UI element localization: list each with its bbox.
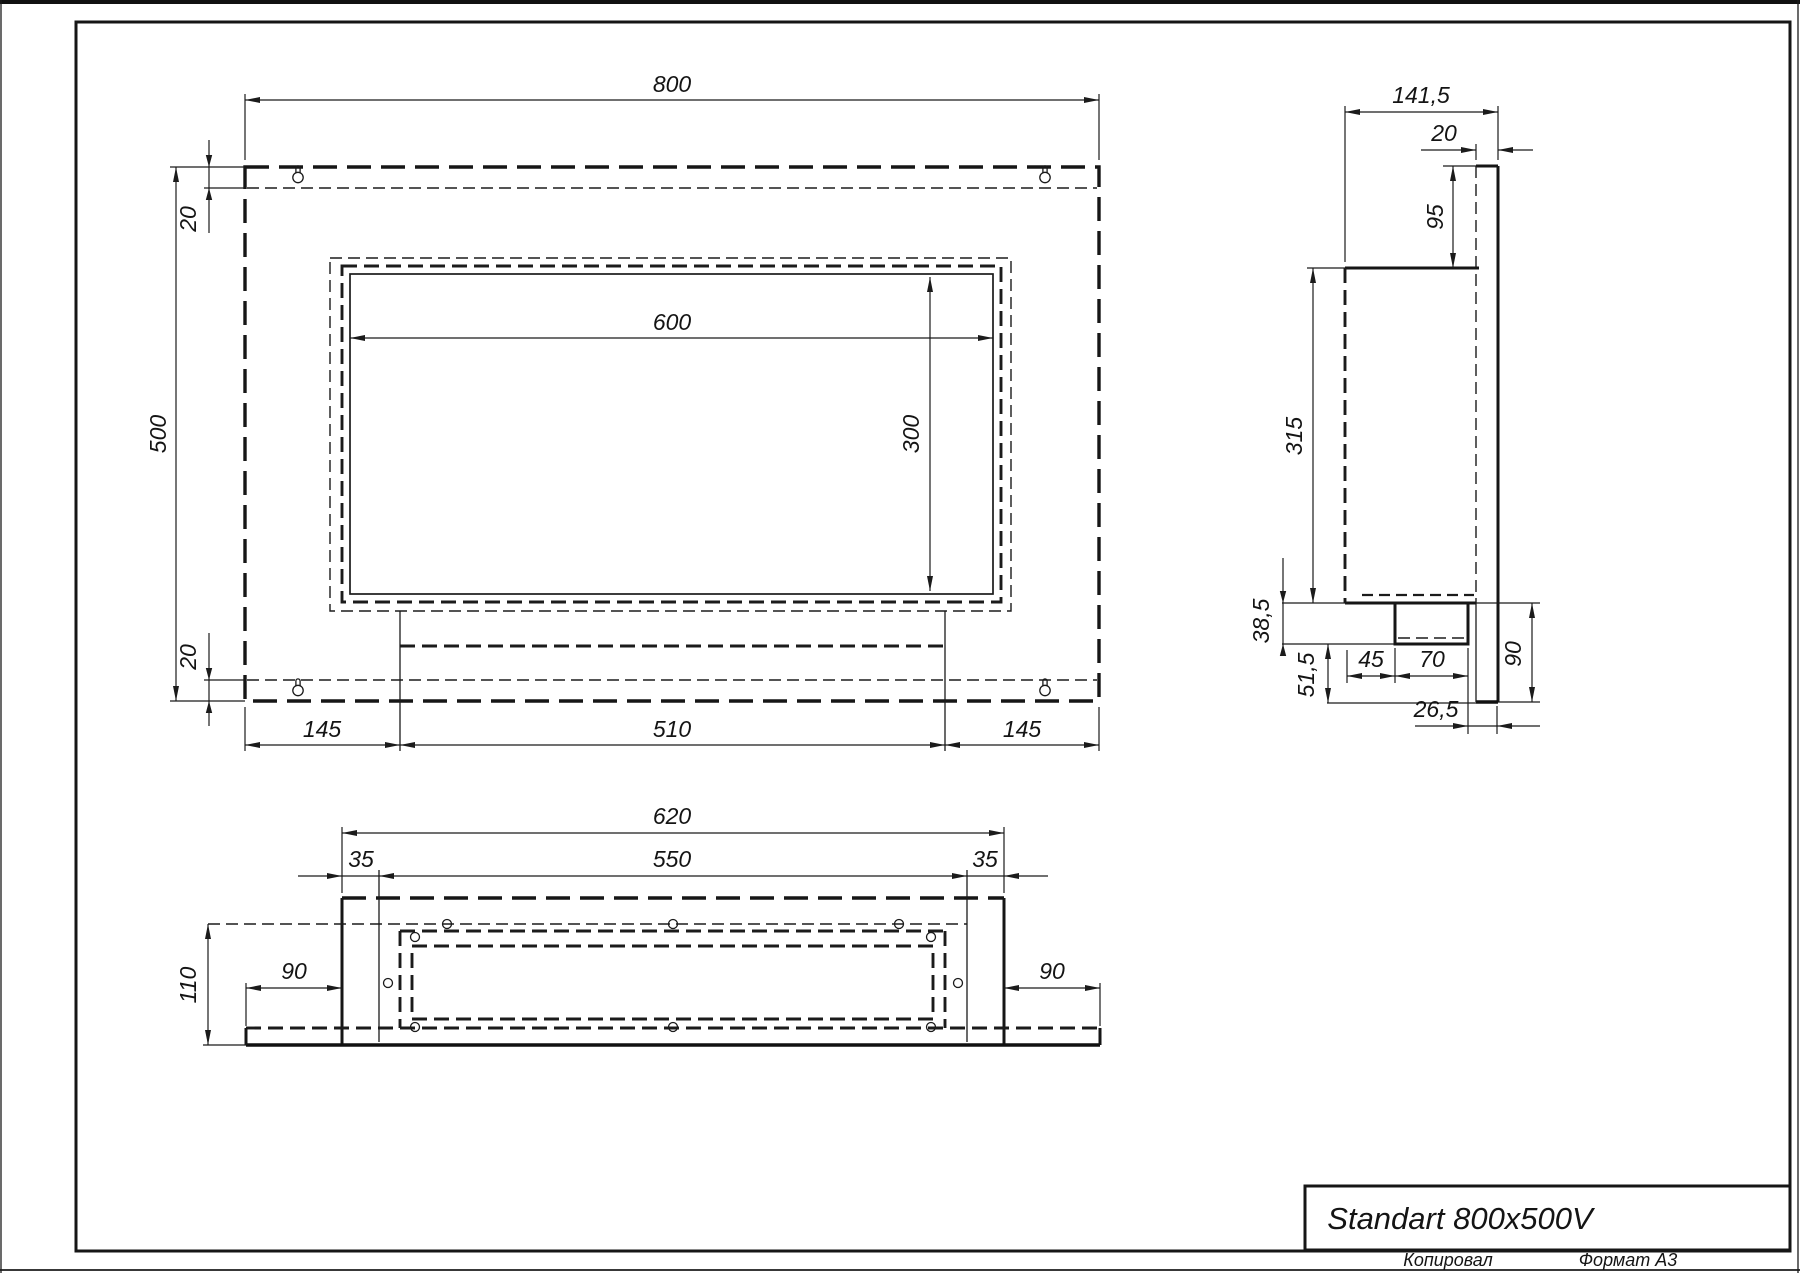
side-view: 141,5 20 95 315 38,5 51,5 [1248, 82, 1540, 734]
bolt-holes [384, 920, 963, 1032]
bottom-view: 620 550 35 35 110 90 90 [175, 803, 1100, 1045]
dim-tray-drop: 38,5 [1248, 598, 1274, 643]
dim-bottom-depth: 110 [175, 966, 201, 1003]
footer-format-label: Формат А3 [1579, 1250, 1678, 1270]
dim-box-height: 315 [1281, 417, 1307, 456]
sheet-edge [0, 0, 1800, 1273]
dim-front-bottom-flange: 20 [175, 644, 201, 671]
dim-bottom-offset: 51,5 [1293, 652, 1319, 697]
front-view: 800 500 20 20 600 300 [145, 71, 1099, 751]
dim-right-inset: 35 [972, 846, 998, 872]
dim-burner-front-offset: 45 [1358, 646, 1384, 672]
dim-tray-width: 510 [653, 716, 692, 742]
title-block: Standart 800x500V [1305, 1186, 1790, 1250]
dim-bottom-right-margin: 90 [1039, 958, 1065, 984]
bottom-view-edges [208, 870, 1100, 1045]
dim-plate-thickness: 20 [1430, 120, 1457, 146]
dim-body-width: 620 [653, 803, 692, 829]
dim-bottom-left-margin: 90 [281, 958, 307, 984]
bottom-view-dimensions: 620 550 35 35 110 90 90 [175, 803, 1100, 1045]
dim-depth: 141,5 [1392, 82, 1450, 108]
footer-copied-label: Копировал [1403, 1250, 1493, 1270]
dim-top-offset: 95 [1422, 204, 1448, 230]
dim-tank-width: 550 [653, 846, 692, 872]
title-block-name: Standart 800x500V [1327, 1201, 1596, 1236]
dim-front-left-margin: 145 [303, 716, 342, 742]
side-view-edges [1345, 166, 1498, 702]
footer-labels: Копировал Формат А3 [1403, 1250, 1677, 1270]
dim-lower-height: 90 [1500, 641, 1526, 667]
dim-front-top-flange: 20 [175, 206, 201, 233]
drawing-frame [76, 22, 1790, 1251]
dim-left-inset: 35 [348, 846, 374, 872]
dim-opening-width: 600 [653, 309, 692, 335]
dim-front-right-margin: 145 [1003, 716, 1042, 742]
drawing-sheet: 800 500 20 20 600 300 [0, 0, 1800, 1273]
dim-opening-height: 300 [898, 415, 924, 454]
front-view-dimensions: 800 500 20 20 600 300 [145, 71, 1099, 751]
dim-burner-depth: 70 [1419, 646, 1445, 672]
dim-burner-back-gap: 26,5 [1413, 696, 1459, 722]
front-view-edges [245, 167, 1099, 751]
keyhole-icon [293, 166, 1050, 696]
dim-front-width: 800 [653, 71, 692, 97]
dim-front-height: 500 [145, 415, 171, 454]
